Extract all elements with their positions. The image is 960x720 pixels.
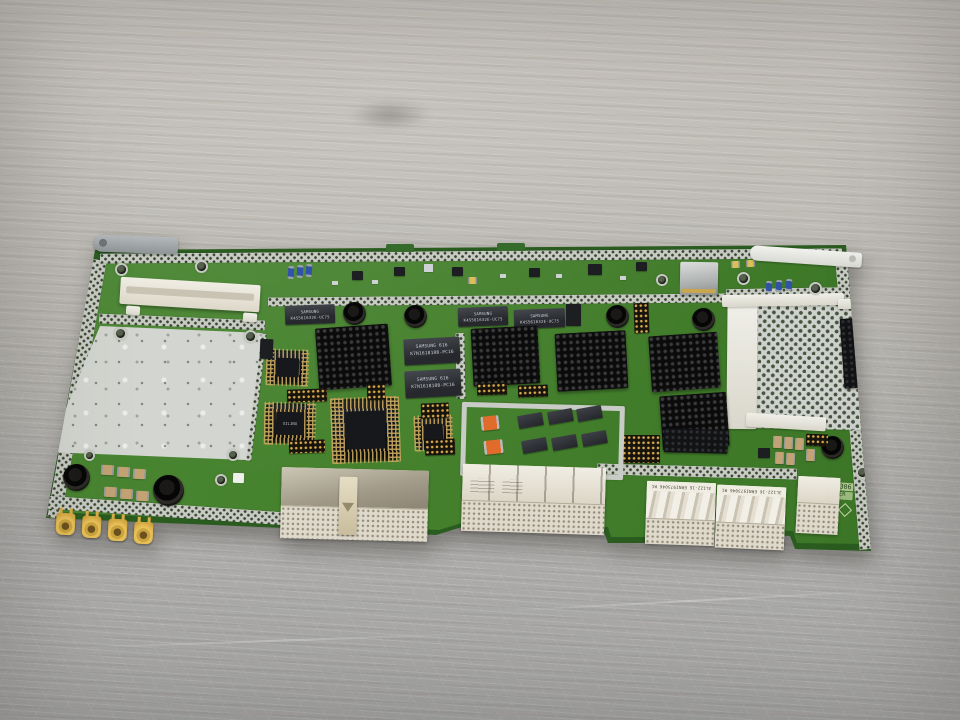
cpld-chip: XILINX xyxy=(268,406,313,442)
smd-capacitor xyxy=(120,489,134,500)
melf-resistor xyxy=(288,266,295,279)
pin-header xyxy=(806,434,828,447)
inductor xyxy=(606,305,629,328)
tantalum-capacitor xyxy=(483,439,503,455)
fpga-chip xyxy=(334,400,397,460)
tantalum-capacitor xyxy=(480,415,499,431)
edge-tab xyxy=(497,243,525,251)
mounting-hole xyxy=(658,276,666,284)
connector-pin-grid xyxy=(715,522,785,551)
cf-socket-stub xyxy=(838,299,852,309)
tantalum-capacitor-yellow xyxy=(746,260,755,267)
pin-header xyxy=(633,303,649,334)
mmcx-connector xyxy=(55,513,75,536)
erni-connector: 3L122-16 ERNI973046 RC xyxy=(715,485,787,550)
backplane-connector-white xyxy=(461,464,606,534)
pin-header xyxy=(518,384,548,397)
connector-teeth xyxy=(646,491,716,520)
pcb-board: SAMSUNG K4S561632E-UC75 SAMSUNG K4S56163… xyxy=(0,0,960,720)
edge-connector-black xyxy=(840,317,871,389)
smd-capacitor xyxy=(133,469,147,480)
sram-label: K7N161810B-PC16 xyxy=(405,382,461,392)
screw xyxy=(217,476,225,484)
connector-print xyxy=(502,479,522,494)
melf-resistor xyxy=(306,264,313,277)
card-edge-latch xyxy=(126,306,141,316)
toroid-inductor xyxy=(63,464,90,491)
sram-chip: SAMSUNG 616 K7N161810B-PC16 xyxy=(404,369,461,399)
smd-resistor xyxy=(372,280,378,284)
sram-chip: SAMSUNG 616 K7N161810B-PC16 xyxy=(403,337,460,366)
board-substrate: SAMSUNG K4S561632E-UC75 SAMSUNG K4S56163… xyxy=(0,0,960,720)
connector-pin-grid xyxy=(461,500,605,535)
mmcx-connector xyxy=(81,516,101,539)
qfp-chip xyxy=(270,352,306,382)
sdram-chip: SAMSUNG K4S561632E-UC75 xyxy=(285,304,336,325)
card-edge-slot xyxy=(126,286,254,301)
heatsink xyxy=(555,330,629,392)
heatsink xyxy=(315,324,392,391)
connector-print xyxy=(470,478,494,493)
cf-socket-left-bar xyxy=(726,302,757,429)
idc-connector xyxy=(664,428,729,454)
melf-resistor xyxy=(766,281,773,293)
backplane-connector-shielded xyxy=(280,467,429,541)
mounting-hole xyxy=(229,451,237,459)
small-ic xyxy=(394,267,405,276)
small-ic xyxy=(566,304,581,326)
connector-teeth xyxy=(716,495,786,525)
smd-resistor xyxy=(500,274,506,278)
small-ic xyxy=(452,267,463,276)
tantalum-capacitor-yellow xyxy=(731,261,740,268)
sdram-label: K4S561632E-UC75 xyxy=(285,314,335,322)
sram-label: K7N161810B-PC16 xyxy=(404,350,460,360)
smd-capacitor xyxy=(795,438,804,450)
mounting-hole xyxy=(197,262,206,271)
mmcx-connector xyxy=(107,519,127,542)
pin-header xyxy=(289,439,325,453)
smd-capacitor xyxy=(101,465,115,476)
sdram-label: K4S561632E-UC75 xyxy=(514,318,565,326)
mounting-hole xyxy=(739,274,748,283)
inductor xyxy=(404,305,427,328)
oscillator-can xyxy=(680,262,719,296)
smd-capacitor xyxy=(117,467,131,478)
pin-header xyxy=(425,438,456,455)
mounting-hole xyxy=(858,468,867,477)
mounting-hole xyxy=(86,452,93,459)
heatsink xyxy=(648,332,721,393)
connector-segments xyxy=(797,476,840,504)
photo-pcb-on-wood: SAMSUNG K4S561632E-UC75 SAMSUNG K4S56163… xyxy=(0,0,960,720)
small-ic xyxy=(636,262,647,271)
smd-capacitor xyxy=(784,437,793,449)
pin-header xyxy=(622,435,660,463)
mounting-hole xyxy=(117,265,126,274)
mounting-hole xyxy=(116,329,125,338)
small-label xyxy=(233,473,244,483)
pin-header xyxy=(287,388,327,402)
smd-capacitor xyxy=(806,449,815,461)
ejector-lever-gray xyxy=(94,235,179,255)
toroid-inductor xyxy=(153,475,184,506)
inductor xyxy=(692,308,715,331)
mounting-hole xyxy=(246,332,255,341)
inductor xyxy=(343,302,366,325)
small-ic xyxy=(352,271,363,280)
tantalum-capacitor-yellow xyxy=(468,277,477,284)
small-ic xyxy=(529,268,540,277)
smd-capacitor xyxy=(786,453,795,465)
melf-resistor xyxy=(297,265,304,278)
smd-component xyxy=(424,264,433,272)
smd-capacitor xyxy=(775,452,784,464)
io-connector-small xyxy=(796,476,841,534)
pin-header xyxy=(367,384,386,401)
connector-key-post xyxy=(338,477,358,535)
heatsink xyxy=(471,325,541,386)
smd-capacitor xyxy=(136,491,150,502)
pin-header xyxy=(421,403,450,419)
sdram-label: K4S561632E-UC75 xyxy=(458,316,508,324)
cpld-label: XILINX xyxy=(276,412,305,435)
qfp-die xyxy=(276,358,299,377)
mmcx-connector xyxy=(133,522,153,545)
card-edge-latch xyxy=(243,313,258,323)
mounting-hole xyxy=(811,284,820,293)
smd-resistor xyxy=(332,281,338,285)
small-ic xyxy=(260,339,274,359)
fpga-die xyxy=(345,411,385,449)
erni-connector: 3L122-16 ERNI973046 RC xyxy=(645,481,716,545)
melf-resistor xyxy=(776,280,783,292)
smd-capacitor xyxy=(104,487,118,498)
edge-tab xyxy=(386,244,414,252)
connector-pin-grid xyxy=(796,502,840,535)
sdram-chip: SAMSUNG K4S561632E-UC75 xyxy=(458,306,509,327)
pin-header xyxy=(477,382,507,395)
melf-resistor xyxy=(786,279,793,291)
connector-pin-grid xyxy=(645,518,715,546)
smd-resistor xyxy=(556,274,562,278)
smd-resistor xyxy=(620,276,626,280)
small-ic xyxy=(588,264,602,275)
smd-capacitor xyxy=(773,436,782,448)
cf-socket-top-bar xyxy=(722,293,844,307)
sot-transistor xyxy=(758,448,770,458)
